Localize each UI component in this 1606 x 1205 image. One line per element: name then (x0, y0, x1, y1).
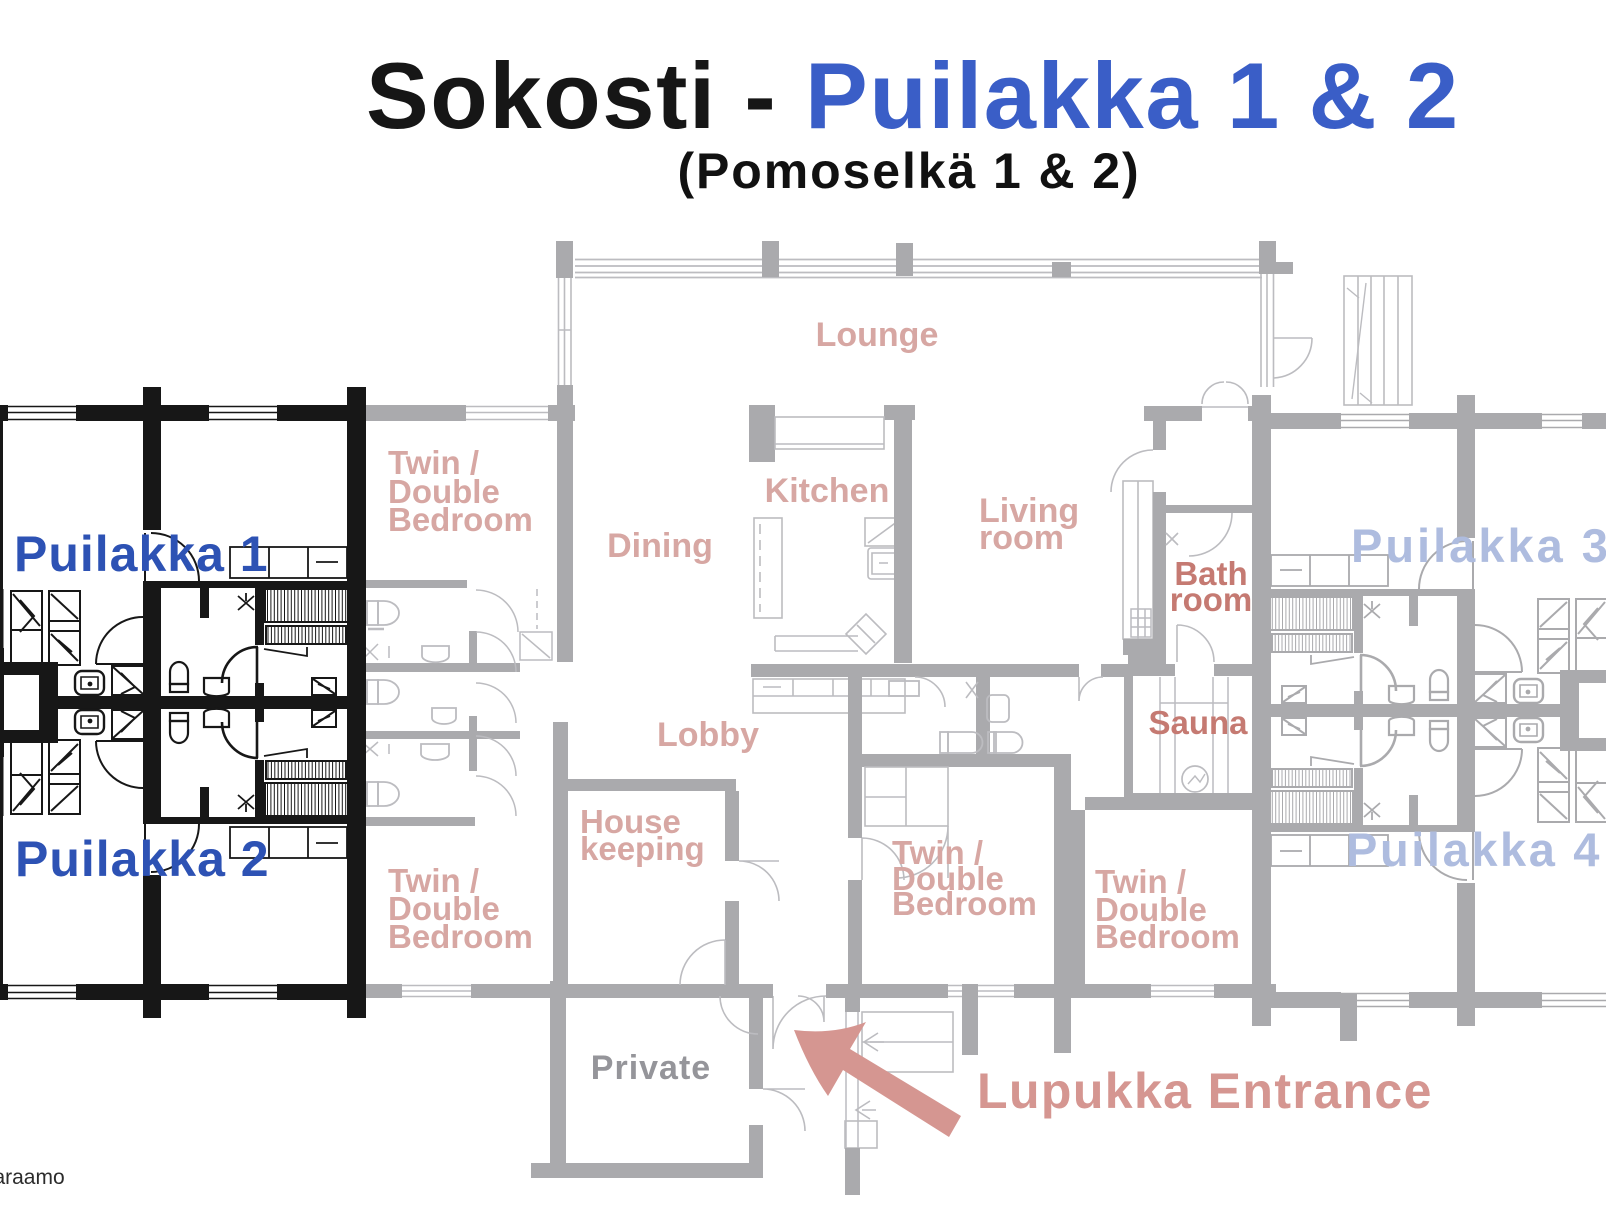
svg-text:Bedroom: Bedroom (892, 885, 1037, 922)
svg-text:Puilakka 4: Puilakka 4 (1346, 823, 1602, 876)
svg-text:Puilakka 3: Puilakka 3 (1351, 519, 1606, 572)
svg-text:Puilakka 1: Puilakka 1 (14, 526, 269, 582)
svg-text:(Pomoselkä 1 & 2): (Pomoselkä 1 & 2) (677, 143, 1140, 199)
svg-text:Lounge: Lounge (816, 316, 939, 354)
svg-text:Bedroom: Bedroom (1095, 918, 1240, 955)
svg-text:room: room (1170, 581, 1253, 618)
svg-text:Puilakka 2: Puilakka 2 (15, 831, 270, 887)
svg-text:Lupukka Entrance: Lupukka Entrance (977, 1063, 1433, 1119)
svg-text:Dining: Dining (607, 527, 713, 565)
svg-text:Bedroom: Bedroom (388, 501, 533, 538)
svg-text:Kitchen: Kitchen (765, 472, 890, 510)
svg-text:Sauna: Sauna (1148, 704, 1248, 741)
svg-text:room: room (979, 519, 1064, 557)
svg-text:Private: Private (591, 1049, 711, 1087)
svg-text:keeping: keeping (580, 830, 705, 867)
svg-text:Varaamo: Varaamo (0, 1166, 65, 1189)
svg-text:Sokosti - Puilakka 1 & 2: Sokosti - Puilakka 1 & 2 (366, 43, 1460, 148)
svg-text:Lobby: Lobby (657, 716, 759, 754)
svg-text:Bedroom: Bedroom (388, 918, 533, 955)
